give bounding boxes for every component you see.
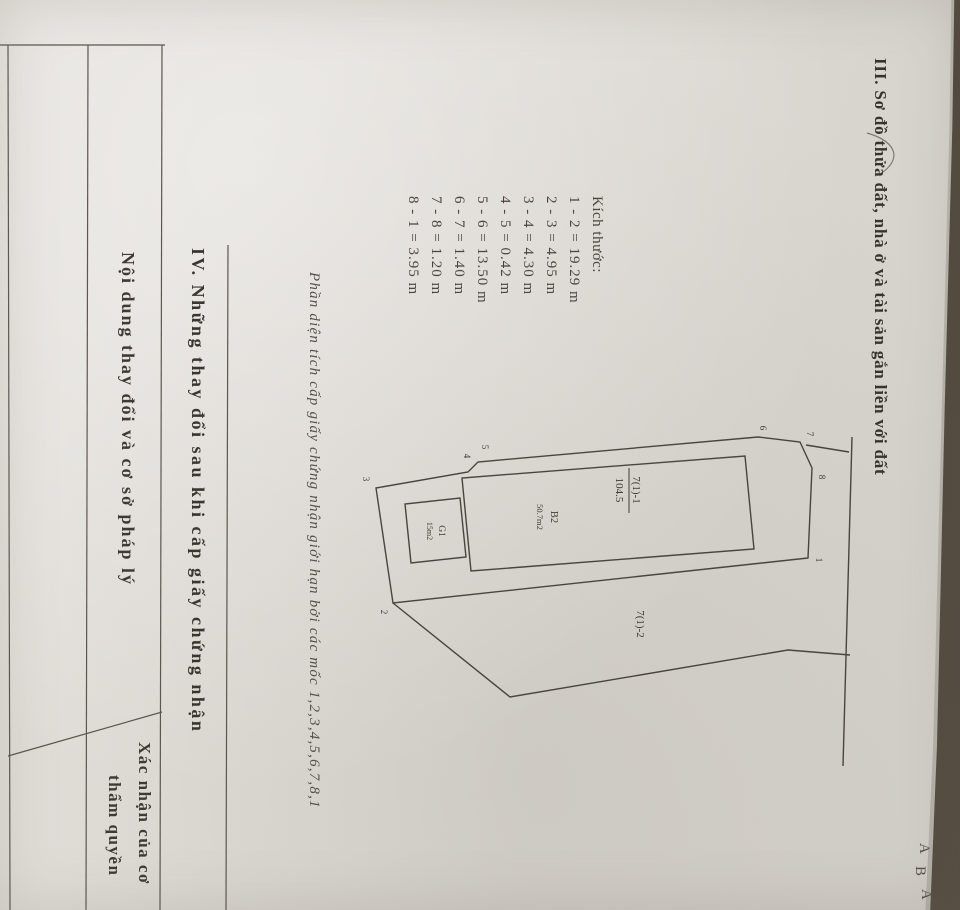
dimension-list: Kích thước: 1 - 2 = 19.29 m 2 - 3 = 4.95… (401, 196, 608, 304)
column-header-content-change: Nội dung thay đổi và cơ sở pháp lý (117, 252, 138, 586)
column-header-authority-line2: thẩm quyền (104, 775, 124, 876)
road-boundary-line (843, 437, 852, 766)
section-iii-title: III. Sơ đồ thửa đất, nhà ở và tài sản gắ… (870, 58, 890, 475)
vertex-label: 2 (379, 610, 389, 615)
connector-line (806, 445, 849, 452)
dimension-row: 1 - 2 = 19.29 m (562, 196, 585, 304)
building-b2-outline (462, 456, 754, 571)
neighbor-boundary (393, 603, 850, 697)
dimension-list-heading: Kích thước: (585, 196, 608, 304)
parcel-number-label: 7(1)-1 (630, 476, 642, 504)
parcel-area-label: 104.5 (613, 478, 625, 503)
table-grid-line (86, 45, 88, 910)
dimension-row: 5 - 6 = 13.50 m (470, 196, 493, 304)
structure-g1-outline (405, 498, 466, 563)
margin-letter-b: B (911, 866, 928, 876)
table-grid-line (8, 45, 10, 910)
building-b2-label: B2 (548, 511, 559, 523)
dimension-row: 6 - 7 = 1.40 m (447, 196, 470, 304)
dimension-row: 7 - 8 = 1.20 m (424, 196, 447, 304)
section-iv-title: IV. Những thay đổi sau khi cấp giấy chứn… (187, 248, 208, 733)
building-b2-area: 50.7m2 (535, 504, 545, 530)
vertex-label: 1 (814, 558, 824, 563)
dimension-row: 8 - 1 = 3.95 m (401, 196, 424, 304)
structure-g1-label: G1 (436, 525, 446, 537)
vertex-label: 6 (758, 426, 768, 431)
table-grid-line (226, 245, 228, 910)
column-header-authority-line1: Xác nhận của cơ (134, 742, 154, 885)
adjacent-parcel-label: 7(1)-2 (634, 610, 646, 638)
dimension-row: 2 - 3 = 4.95 m (539, 196, 562, 304)
parcel-boundary (376, 437, 812, 603)
vertex-label: 7 (805, 432, 815, 437)
dimension-row: 3 - 4 = 4.30 m (516, 196, 539, 304)
vertex-label: 8 (817, 475, 827, 480)
vertex-label: 3 (361, 477, 371, 482)
structure-g1-area: 15m2 (425, 522, 434, 540)
certificate-page: 1 2 3 4 5 6 7 8 7(1)-1 104.5 B2 50.7m2 G… (0, 0, 960, 910)
vertex-label: 4 (462, 454, 472, 459)
table-grid-line (160, 45, 162, 910)
certified-area-note: Phần diện tích cấp giấy chứng nhận giới … (305, 272, 322, 809)
scanned-page-photo: 1 2 3 4 5 6 7 8 7(1)-1 104.5 B2 50.7m2 G… (0, 0, 960, 910)
vertex-label: 5 (480, 445, 490, 450)
dimension-row: 4 - 5 = 0.42 m (493, 196, 516, 304)
